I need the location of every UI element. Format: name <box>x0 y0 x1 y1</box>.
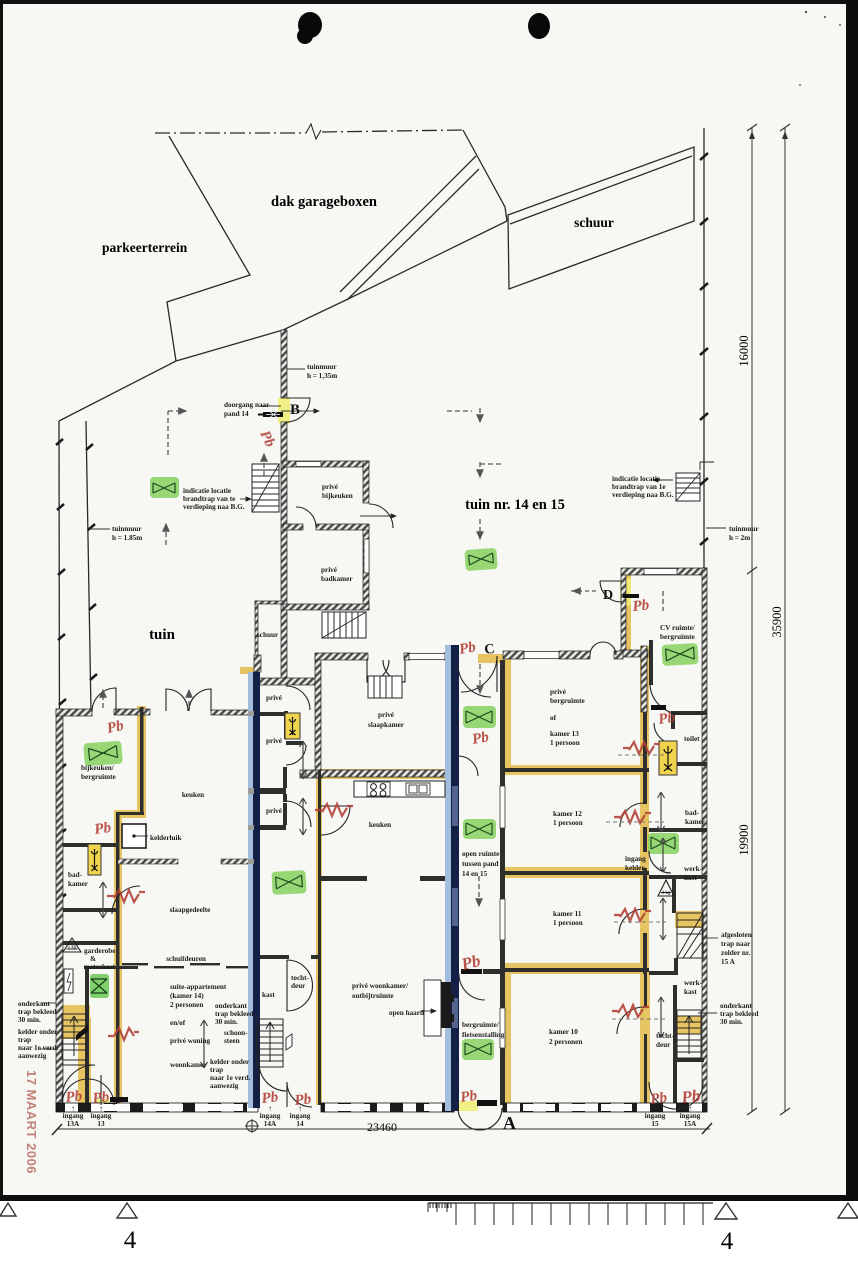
svg-text:trap: trap <box>210 1066 223 1074</box>
svg-text:bergruimte: bergruimte <box>81 773 116 781</box>
svg-text:2 personen: 2 personen <box>549 1038 582 1046</box>
svg-text:1 persoon: 1 persoon <box>550 739 580 747</box>
svg-text:brandtrap van te: brandtrap van te <box>183 495 235 503</box>
svg-text:tuin nr. 14 en 15: tuin nr. 14 en 15 <box>465 497 565 513</box>
svg-text:tuinmuur: tuinmuur <box>729 525 759 533</box>
svg-text:parkeerterrein: parkeerterrein <box>102 240 188 255</box>
svg-text:14A: 14A <box>264 1120 277 1128</box>
svg-text:kamer 10: kamer 10 <box>549 1028 578 1036</box>
svg-text:23460: 23460 <box>367 1120 397 1134</box>
svg-text:privé: privé <box>266 737 282 745</box>
svg-text:Pb: Pb <box>458 639 478 658</box>
svg-text:Pb: Pb <box>657 710 676 728</box>
svg-text:ingang: ingang <box>625 855 646 863</box>
svg-text:bergruimte/: bergruimte/ <box>462 1021 500 1029</box>
svg-text:schuifdeuren: schuifdeuren <box>166 955 206 963</box>
svg-text:fietsenstalling: fietsenstalling <box>462 1031 505 1039</box>
svg-text:tussen pand: tussen pand <box>462 860 499 868</box>
svg-text:ingang: ingang <box>645 1112 666 1120</box>
svg-text:ontbijtruimte: ontbijtruimte <box>352 992 394 1000</box>
svg-text:30 min.: 30 min. <box>18 1016 41 1024</box>
svg-text:naar 1e verd.: naar 1e verd. <box>210 1074 251 1082</box>
svg-text:Pb: Pb <box>632 597 651 615</box>
svg-text:13A: 13A <box>67 1120 80 1128</box>
svg-text:toilet: toilet <box>684 735 700 743</box>
svg-text:tuinmuur: tuinmuur <box>112 525 142 533</box>
svg-text:bergruimte: bergruimte <box>550 697 585 705</box>
svg-text:of: of <box>550 714 557 722</box>
svg-text:tocht-: tocht- <box>291 974 310 982</box>
svg-text:30 min.: 30 min. <box>215 1018 238 1026</box>
svg-text:onderkant: onderkant <box>215 1002 248 1010</box>
svg-text:↑: ↑ <box>71 1104 75 1113</box>
svg-text:D: D <box>603 588 613 603</box>
svg-text:Pb: Pb <box>106 718 126 737</box>
svg-text:trap: trap <box>18 1036 31 1044</box>
svg-text:bad-: bad- <box>68 871 83 879</box>
svg-text:Pb: Pb <box>471 729 491 748</box>
svg-text:privé woning: privé woning <box>170 1037 211 1045</box>
svg-text:bijkeuken/: bijkeuken/ <box>81 764 115 772</box>
svg-text:privé: privé <box>550 688 566 696</box>
svg-text:steen: steen <box>224 1037 240 1045</box>
svg-text:h = 1,35m: h = 1,35m <box>307 372 337 380</box>
svg-text:5 kg: 5 kg <box>68 945 77 950</box>
svg-text:indicatie locatie: indicatie locatie <box>612 475 660 483</box>
svg-text:15 A: 15 A <box>721 958 736 966</box>
svg-text:doorgang naar: doorgang naar <box>224 401 270 409</box>
svg-text:brandtrap van 1e: brandtrap van 1e <box>612 483 666 491</box>
svg-text:ingang: ingang <box>680 1112 701 1120</box>
svg-text:afgesloten: afgesloten <box>721 931 752 939</box>
svg-text:30 min.: 30 min. <box>720 1018 743 1026</box>
svg-text:kast: kast <box>684 874 697 882</box>
svg-text:CV ruimte/: CV ruimte/ <box>660 624 696 632</box>
svg-text:1 persoon: 1 persoon <box>553 819 583 827</box>
svg-text:&: & <box>90 955 96 963</box>
svg-text:17 MAART 2006: 17 MAART 2006 <box>24 1070 39 1174</box>
svg-text:garderobe: garderobe <box>84 947 115 955</box>
svg-text:privé: privé <box>322 483 338 491</box>
svg-text:kast: kast <box>684 988 697 996</box>
svg-text:↑: ↑ <box>268 1104 272 1113</box>
svg-text:16000: 16000 <box>737 335 751 366</box>
svg-text:2 personen: 2 personen <box>170 1001 203 1009</box>
svg-text:kelder onder: kelder onder <box>210 1058 250 1066</box>
svg-text:keuken: keuken <box>369 821 391 829</box>
svg-text:↑: ↑ <box>688 1104 692 1113</box>
svg-text:14 en 15: 14 en 15 <box>462 870 488 878</box>
svg-text:B: B <box>290 402 300 418</box>
svg-text:woonkamer: woonkamer <box>170 1061 207 1069</box>
svg-text:werk-: werk- <box>684 979 703 987</box>
svg-text:dak garageboxen: dak garageboxen <box>271 194 377 210</box>
svg-text:Pb: Pb <box>294 1091 313 1109</box>
svg-text:open haard: open haard <box>389 1009 424 1017</box>
svg-text:ingang: ingang <box>260 1112 281 1120</box>
svg-text:kelder: kelder <box>625 864 645 872</box>
svg-text:badkamer: badkamer <box>321 575 353 583</box>
svg-text:kamer 13: kamer 13 <box>550 730 579 738</box>
svg-text:trap naar: trap naar <box>721 940 751 948</box>
svg-text:privé woonkamer/: privé woonkamer/ <box>352 982 409 990</box>
svg-text:Pb: Pb <box>93 820 112 838</box>
svg-text:19900: 19900 <box>737 824 751 855</box>
svg-text:kamer: kamer <box>685 818 706 826</box>
svg-text:trap bekleed: trap bekleed <box>720 1010 759 1018</box>
svg-text:C: C <box>483 642 495 658</box>
svg-text:bergruimte: bergruimte <box>660 633 695 641</box>
svg-text:onderkant: onderkant <box>18 1000 51 1008</box>
svg-text:zolder nr.: zolder nr. <box>721 949 750 957</box>
svg-text:trap bekleed: trap bekleed <box>215 1010 254 1018</box>
svg-text:privé: privé <box>266 807 282 815</box>
svg-text:ingang: ingang <box>290 1112 311 1120</box>
svg-text:kelderluik: kelderluik <box>150 834 182 842</box>
svg-text:bad-: bad- <box>685 809 700 817</box>
svg-text:↑: ↑ <box>99 1104 103 1113</box>
svg-text:schoon-: schoon- <box>224 1029 248 1037</box>
svg-text:slaapkamer: slaapkamer <box>368 721 405 729</box>
svg-text:1 persoon: 1 persoon <box>553 919 583 927</box>
svg-text:schuur: schuur <box>257 631 279 639</box>
svg-text:bijkeuken: bijkeuken <box>322 492 353 500</box>
svg-text:schuur: schuur <box>574 215 614 230</box>
svg-text:4: 4 <box>124 1227 137 1254</box>
svg-text:verdieping naa B.G.: verdieping naa B.G. <box>612 491 674 499</box>
svg-text:tuin: tuin <box>149 627 176 643</box>
svg-text:verdieping naa B.G.: verdieping naa B.G. <box>183 503 245 511</box>
svg-text:privé: privé <box>266 694 282 702</box>
svg-text:ingang: ingang <box>63 1112 84 1120</box>
svg-text:tocht-: tocht- <box>656 1032 675 1040</box>
svg-text:onderkant: onderkant <box>720 1002 753 1010</box>
svg-text:tuinmuur: tuinmuur <box>307 363 337 371</box>
svg-text:Pb: Pb <box>256 428 278 450</box>
svg-text:deur: deur <box>291 982 306 990</box>
svg-text:pand 14: pand 14 <box>224 410 249 418</box>
svg-text:4: 4 <box>721 1228 734 1255</box>
svg-text:aanwezig: aanwezig <box>18 1052 47 1060</box>
svg-text:aanwezig: aanwezig <box>210 1082 239 1090</box>
svg-text:kamer 12: kamer 12 <box>553 810 582 818</box>
svg-text:Pb: Pb <box>459 1088 478 1106</box>
svg-text:h = 2m: h = 2m <box>729 534 750 542</box>
svg-text:13: 13 <box>97 1120 105 1128</box>
svg-text:deur: deur <box>656 1041 671 1049</box>
svg-text:kamer: kamer <box>68 880 89 888</box>
svg-text:naar 1e verd.: naar 1e verd. <box>18 1044 59 1052</box>
svg-text:werk-: werk- <box>684 865 703 873</box>
svg-text:slaapgedeelte: slaapgedeelte <box>170 906 211 914</box>
svg-text:↑: ↑ <box>653 1104 657 1113</box>
svg-text:kelder onder: kelder onder <box>18 1028 58 1036</box>
svg-text:(kamer 14): (kamer 14) <box>170 992 204 1000</box>
svg-text:privé: privé <box>378 711 394 719</box>
svg-text:kast: kast <box>262 991 275 999</box>
svg-text:h = 1.85m: h = 1.85m <box>112 534 142 542</box>
svg-text:meterkast: meterkast <box>84 963 115 971</box>
svg-text:4 kg: 4 kg <box>662 891 671 896</box>
svg-text:kamer 11: kamer 11 <box>553 910 582 918</box>
svg-text:↑: ↑ <box>298 1104 302 1113</box>
svg-text:en/of: en/of <box>170 1019 186 1027</box>
svg-text:open ruimte: open ruimte <box>462 850 499 858</box>
svg-text:suite-appartement: suite-appartement <box>170 983 227 991</box>
svg-text:trap bekleed: trap bekleed <box>18 1008 57 1016</box>
svg-text:35900: 35900 <box>770 606 784 637</box>
svg-text:ingang: ingang <box>91 1112 112 1120</box>
svg-text:15A: 15A <box>684 1120 697 1128</box>
svg-text:15: 15 <box>651 1120 659 1128</box>
svg-text:14: 14 <box>296 1120 304 1128</box>
svg-text:keuken: keuken <box>182 791 204 799</box>
svg-text:privé: privé <box>321 566 337 574</box>
svg-text:A: A <box>503 1113 516 1133</box>
svg-text:indicatie locatie: indicatie locatie <box>183 487 231 495</box>
